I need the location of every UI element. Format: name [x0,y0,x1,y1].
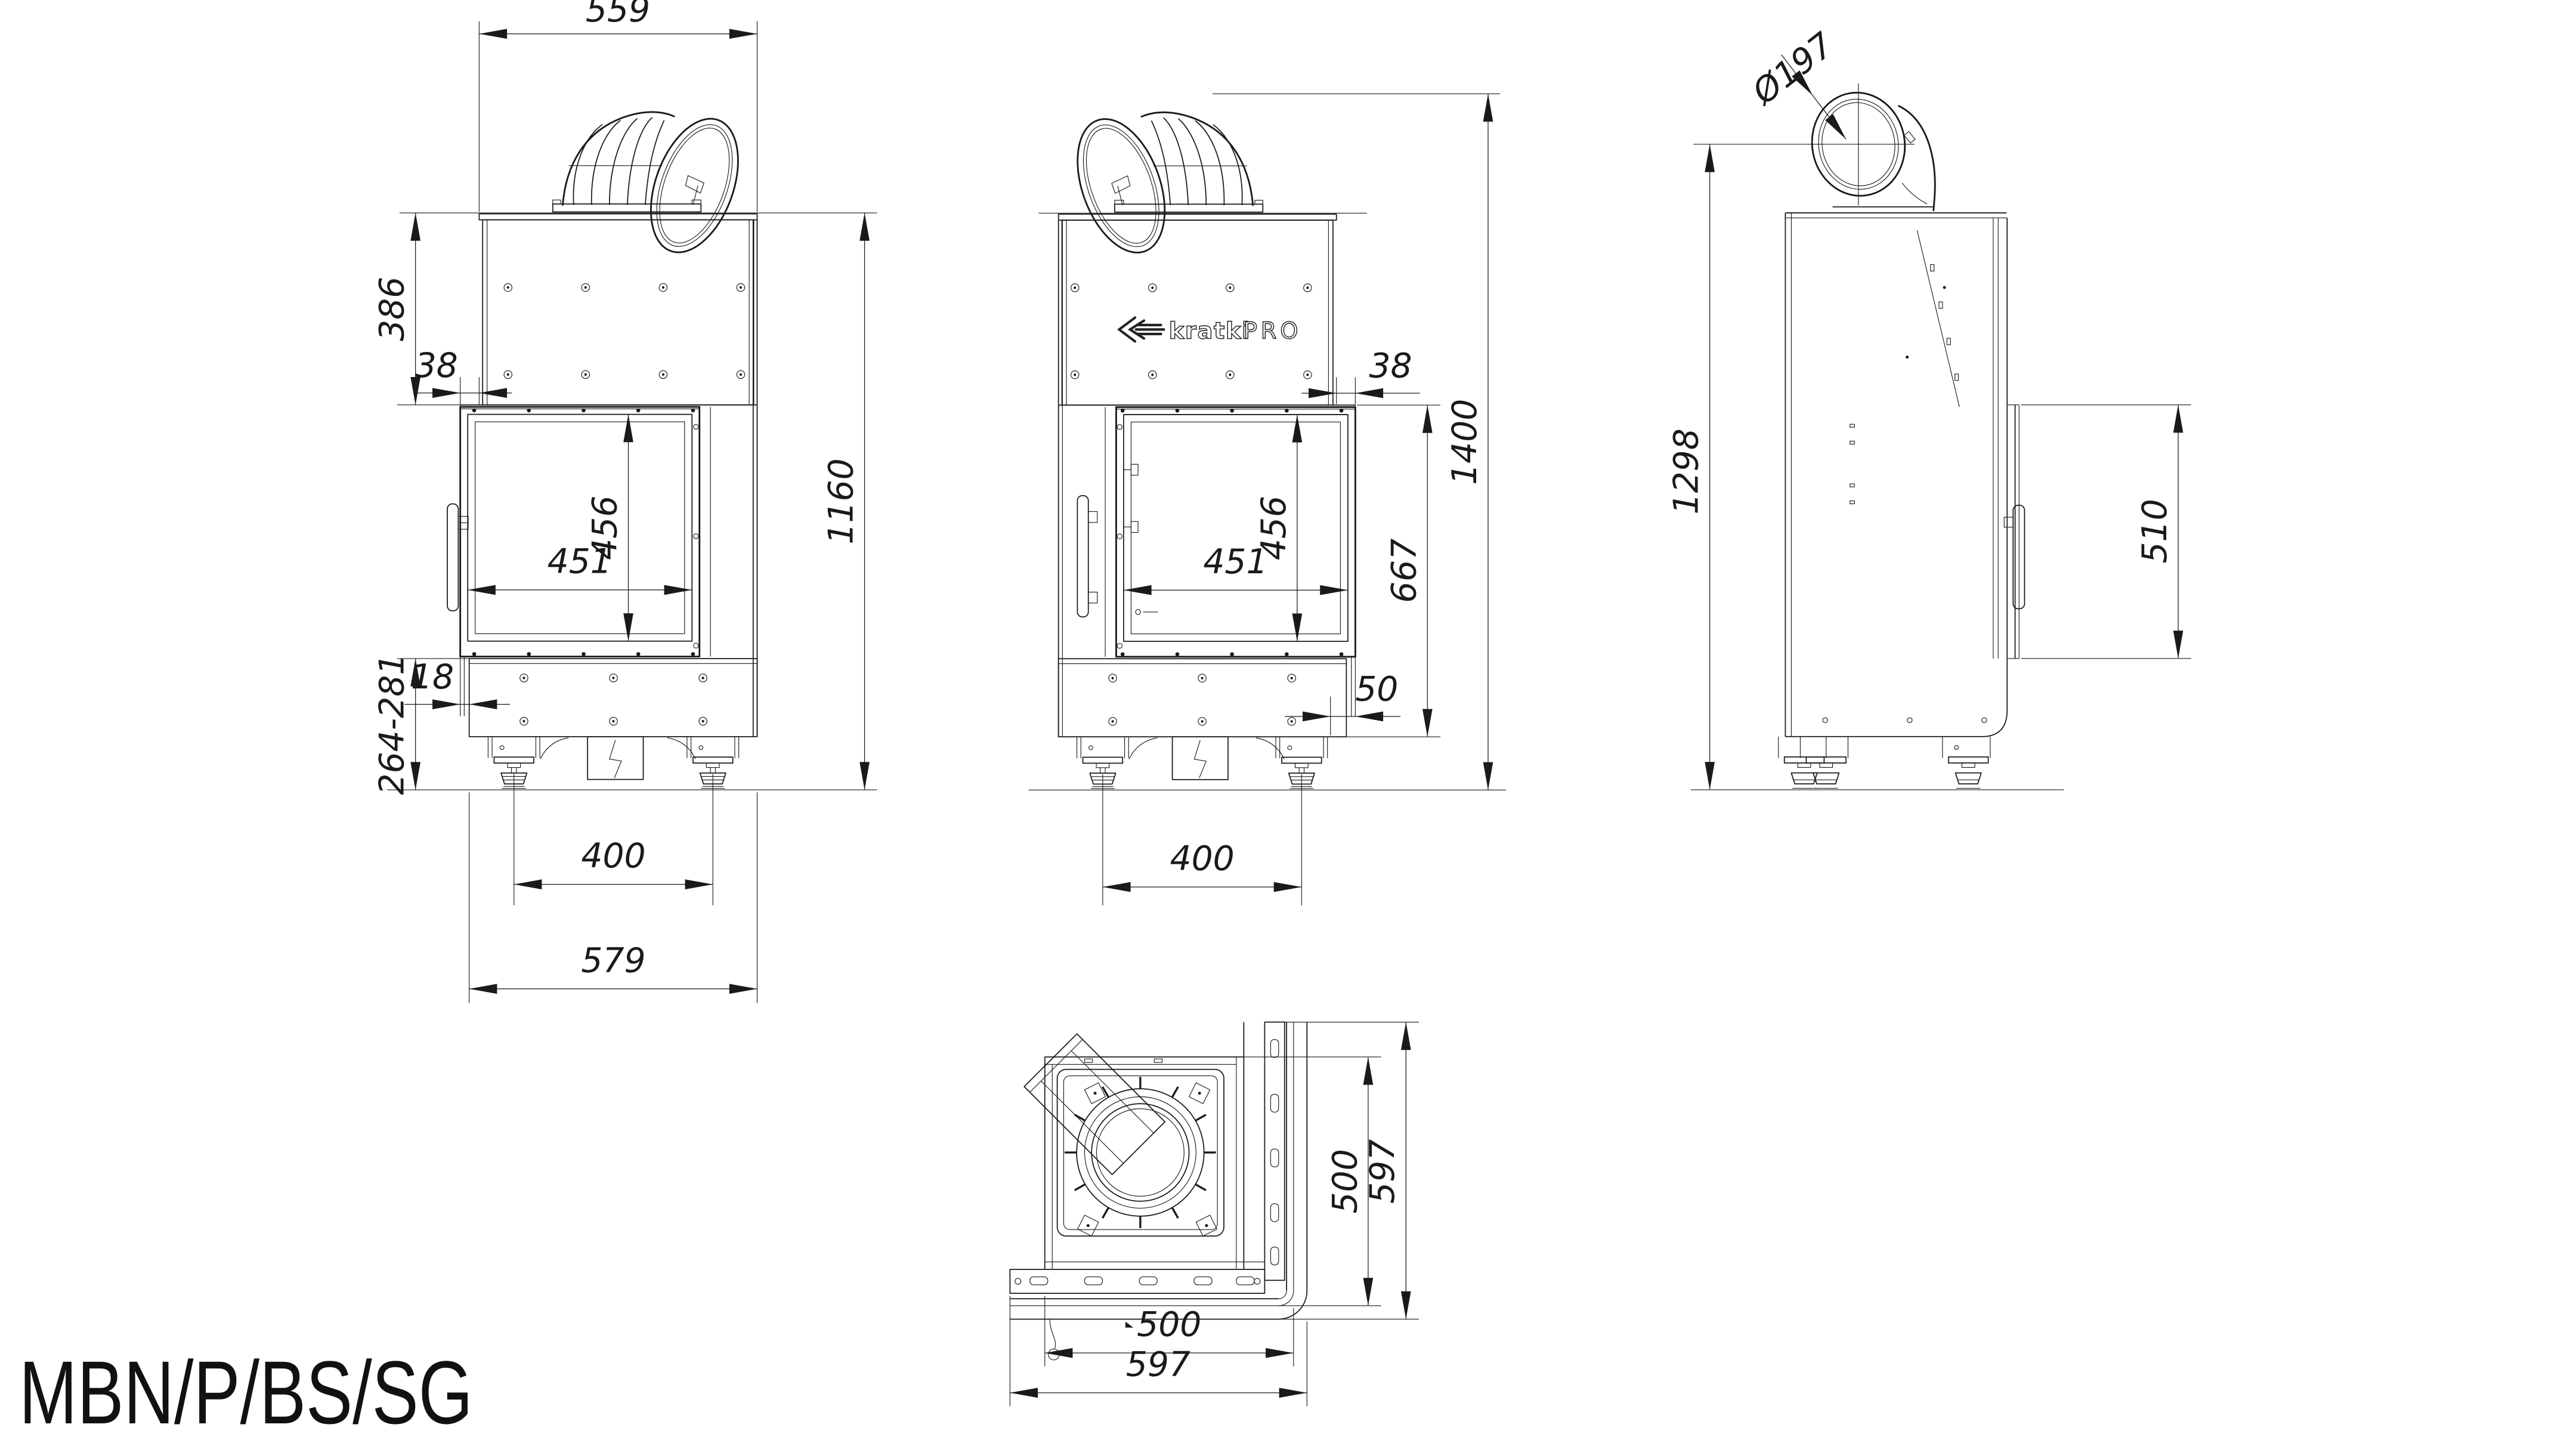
dim-firebox-height: 667 [1384,539,1424,603]
dimensions-side: Ø197 1298 510 [1667,25,2191,790]
front-view-flue-left: kratki PRO [1019,64,1536,959]
dim-flue-axis-height: 1298 [1667,428,1706,514]
dim-upper-height: 386 [373,277,412,341]
dim-inner-depth: 500 [1326,1149,1365,1213]
door-latch-hardware [1123,464,1138,532]
logo-series-text: PRO [1244,317,1301,344]
dim-inner-width: 500 [1137,1305,1201,1345]
dim-overall-depth: 597 [1363,1139,1402,1203]
dim-frame-offset: 38 [415,346,458,385]
dim-glass-width-2: 451 [1203,542,1267,582]
kratki-logo: kratki PRO [1119,317,1301,344]
logo-brand-text: kratki [1169,317,1251,344]
dimensions-front-right: 38 456 451 667 1400 50 400 [1103,94,1500,906]
flue-elbow [553,107,755,264]
dim-glass-width: 451 [548,542,612,582]
casing-screws [504,283,745,378]
dim-frame-offset-2: 38 [1369,346,1412,385]
front-view-flue-right: 559 386 38 456 451 1160 18 264-281 400 5… [330,0,912,1039]
collar-bolt-tabs [1065,1077,1216,1228]
dim-overall-width: 597 [1126,1345,1190,1384]
dim-base-width: 579 [581,941,645,980]
door-front [447,407,710,657]
dim-total-height: 1400 [1445,399,1485,485]
dim-base-step: 18 [411,657,454,697]
dim-feet-spacing-2: 400 [1170,839,1235,879]
dim-top-width: 559 [586,0,650,30]
door-handle [447,504,468,611]
door-handle-top [1049,1319,1134,1360]
flue-elbow-mirrored [1061,107,1263,265]
foot-rear-b [1800,737,1848,789]
glass-logo-mark [1136,610,1158,614]
flue-elbow-side [1693,84,1935,211]
dim-base-height: 264-281 [373,654,412,795]
door-handle-2 [1077,496,1097,617]
drawing-title: MBN/P/BS/SG [19,1341,473,1444]
door-front-2 [1077,407,1355,656]
body-side [1691,213,2064,790]
bent-glass-corner [1279,1291,1307,1320]
top-view: 500 597 500 597 [990,1002,1458,1425]
base-front-2 [1029,657,1506,790]
dimensions-top: 500 597 500 597 [1010,1022,1419,1406]
foot-front [1943,737,1990,789]
base-front [387,657,877,790]
dim-body-height: 1160 [822,458,861,544]
flue-collar-plate [1057,1070,1224,1236]
dim-feet-spacing: 400 [581,836,645,876]
kratki-logo-icon [1119,317,1164,341]
dim-door-height: 510 [2135,499,2175,563]
side-view: Ø197 1298 510 [1651,39,2218,835]
right-glass-frame [1264,1022,1307,1290]
dim-front-step: 50 [1355,669,1398,709]
dimensions-front-left: 559 386 38 456 451 1160 18 264-281 400 5… [373,0,865,1003]
